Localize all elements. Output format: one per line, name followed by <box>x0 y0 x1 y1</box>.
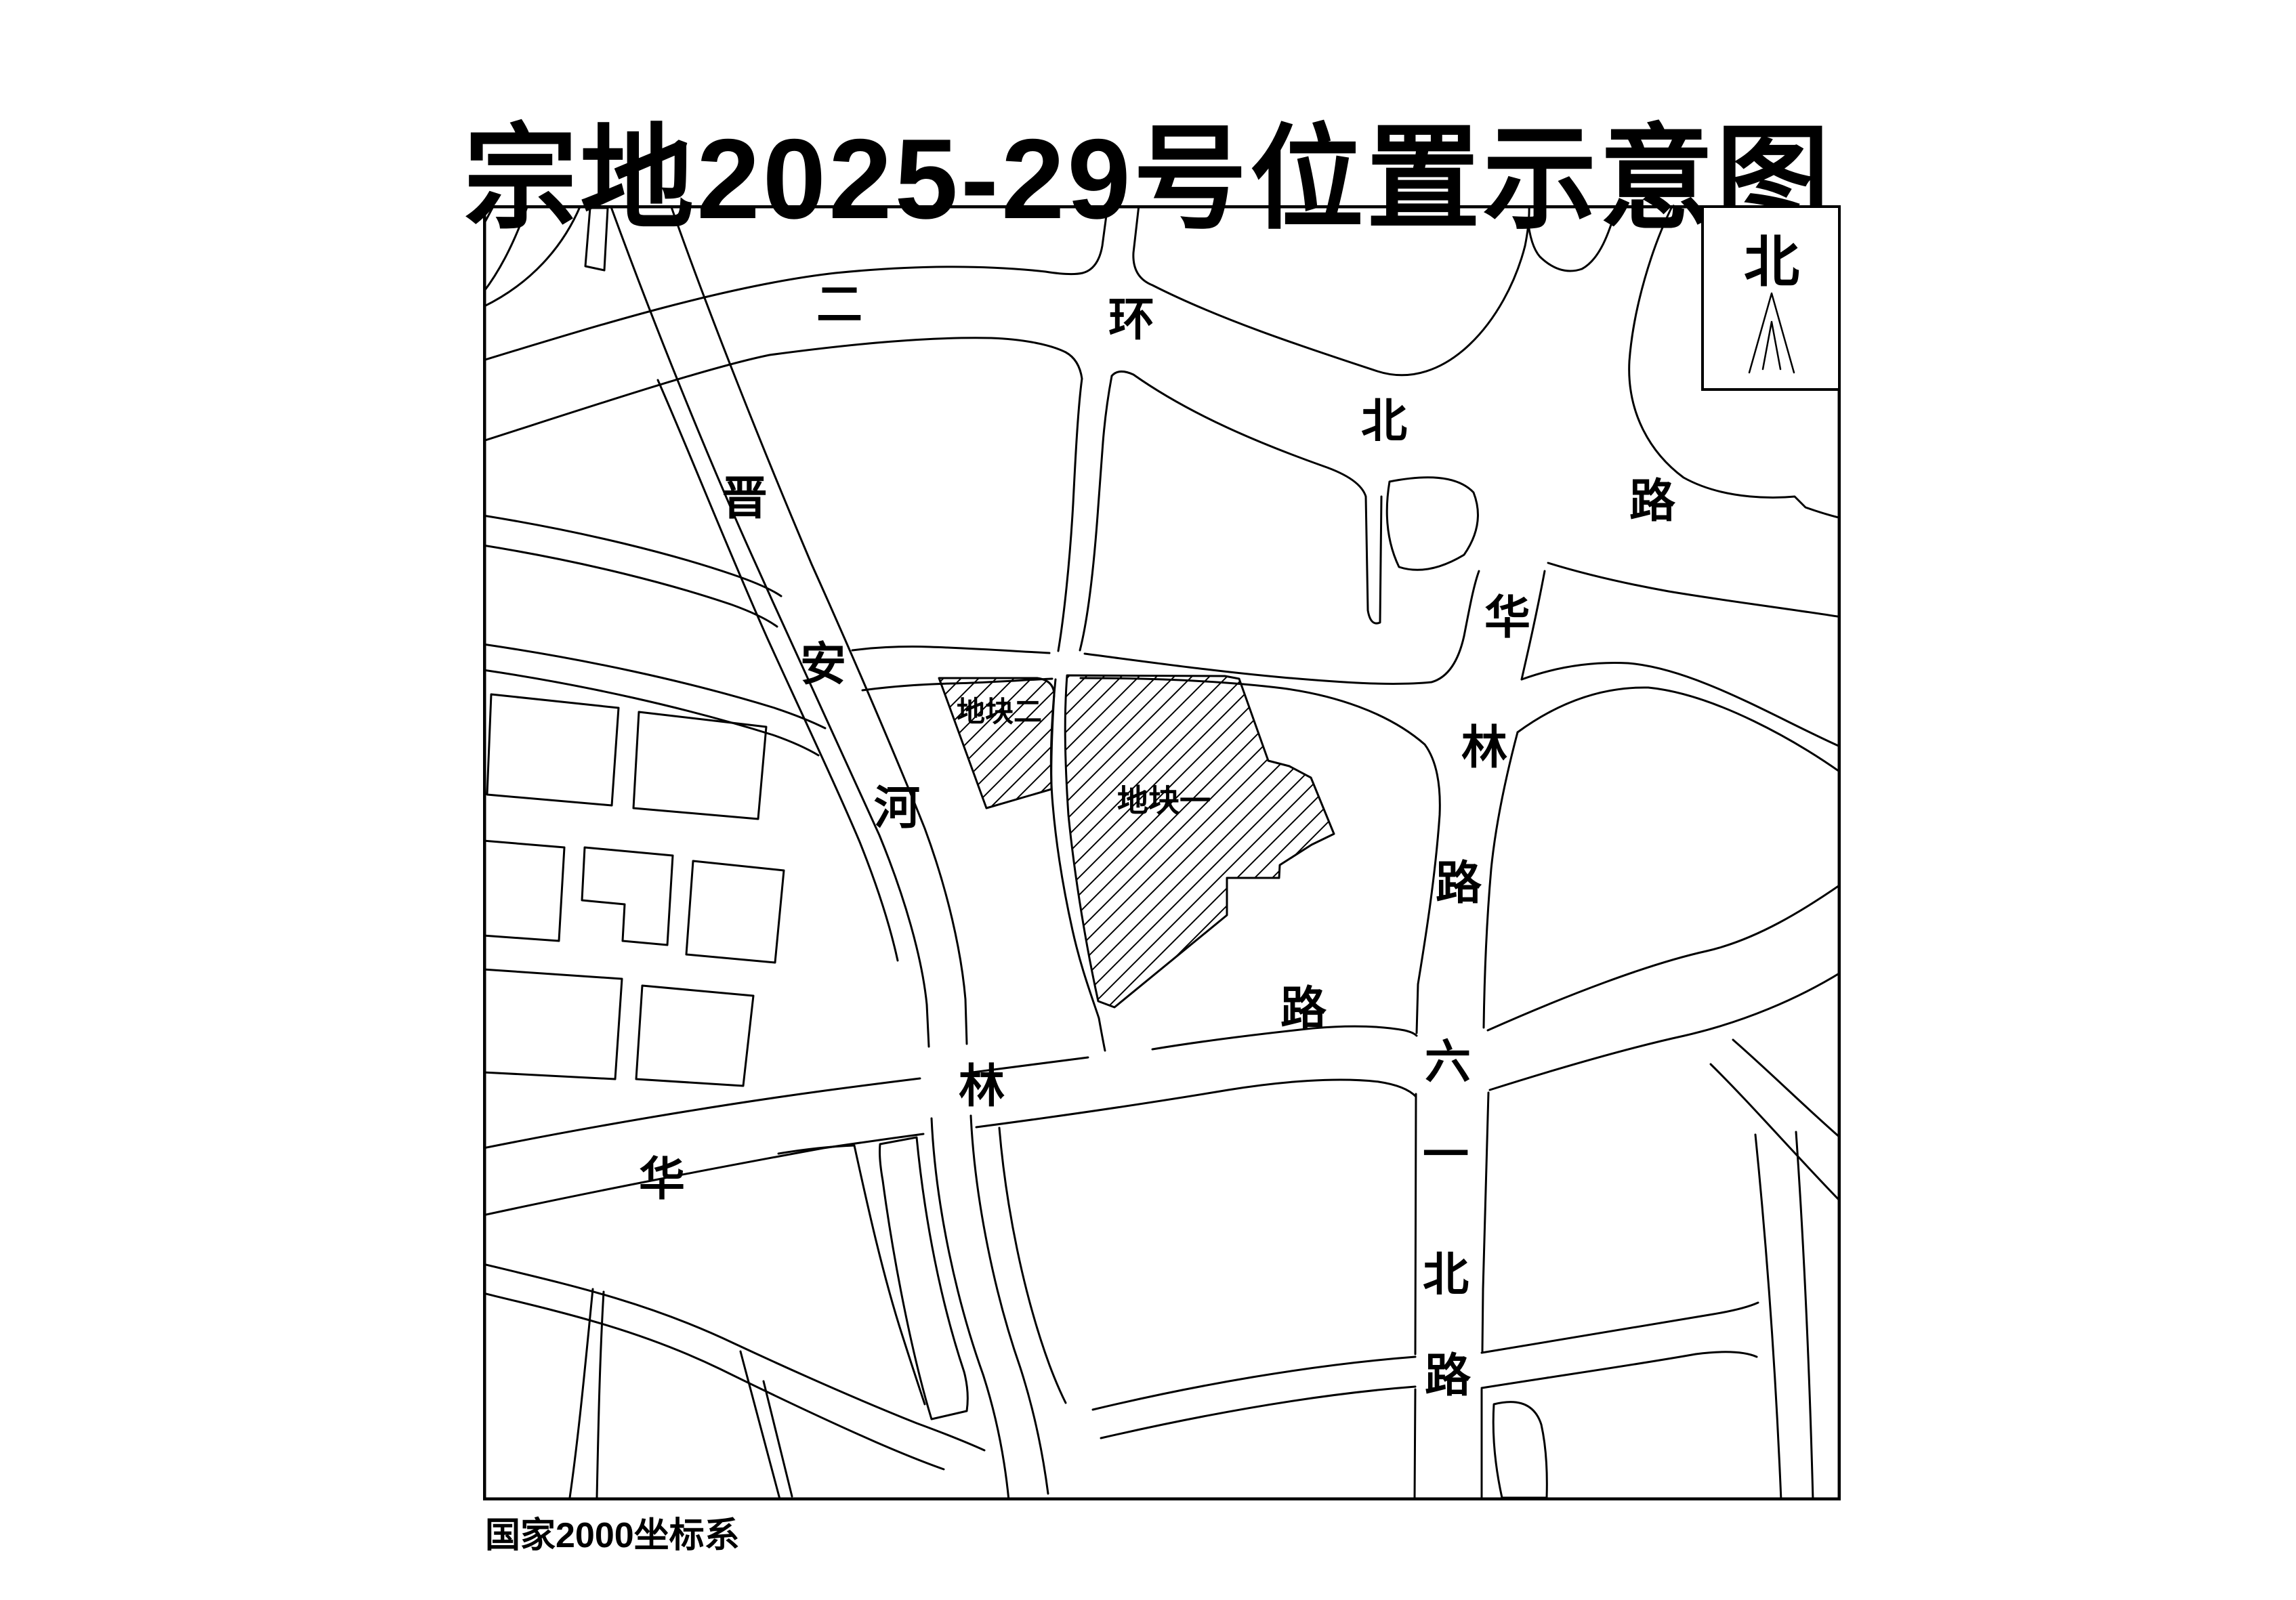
liuyibeilu-char-0: 六 <box>1425 1036 1471 1088</box>
parcels: 地块二 地块一 <box>939 675 1334 1007</box>
hualinlu-d-char-1: 林 <box>959 1061 1005 1112</box>
jinanhe-char-1: 安 <box>800 639 846 690</box>
coordinate-system-note: 国家2000坐标系 <box>485 1507 740 1557</box>
erhuanbeilu-char-0: 二 <box>816 279 862 331</box>
jinanhe-char-2: 河 <box>874 782 920 834</box>
hualinlu-v-char-1: 林 <box>1461 722 1507 774</box>
erhuanbeilu-char-3: 路 <box>1629 476 1676 527</box>
hualinlu-v-char-0: 华 <box>1484 592 1530 644</box>
hualinlu-d-char-2: 路 <box>1280 983 1327 1034</box>
parcel-1-shape <box>1065 675 1334 1007</box>
hualinlu-v-char-2: 路 <box>1436 858 1482 909</box>
jinanhe-char-0: 晋 <box>722 473 768 524</box>
liuyibeilu-char-2: 北 <box>1423 1249 1469 1301</box>
liuyibeilu-char-3: 路 <box>1425 1350 1471 1402</box>
map: 地块二 地块一 二 环 北 路 晋 安 河 华 林 路 华 林 路 六 一 北 … <box>483 205 1841 1500</box>
north-arrow-box: 北 <box>1703 207 1839 390</box>
erhuanbeilu-char-1: 环 <box>1108 294 1154 345</box>
hualinlu-d-char-0: 华 <box>639 1154 685 1205</box>
parcel-2-label: 地块二 <box>957 696 1042 728</box>
liuyibeilu-char-1: 一 <box>1423 1129 1469 1181</box>
page: 宗地2025-29号位置示意图 <box>0 0 2296 1600</box>
erhuanbeilu-char-2: 北 <box>1361 396 1407 447</box>
north-label: 北 <box>1744 232 1799 293</box>
parcel-1-label: 地块一 <box>1117 783 1211 818</box>
